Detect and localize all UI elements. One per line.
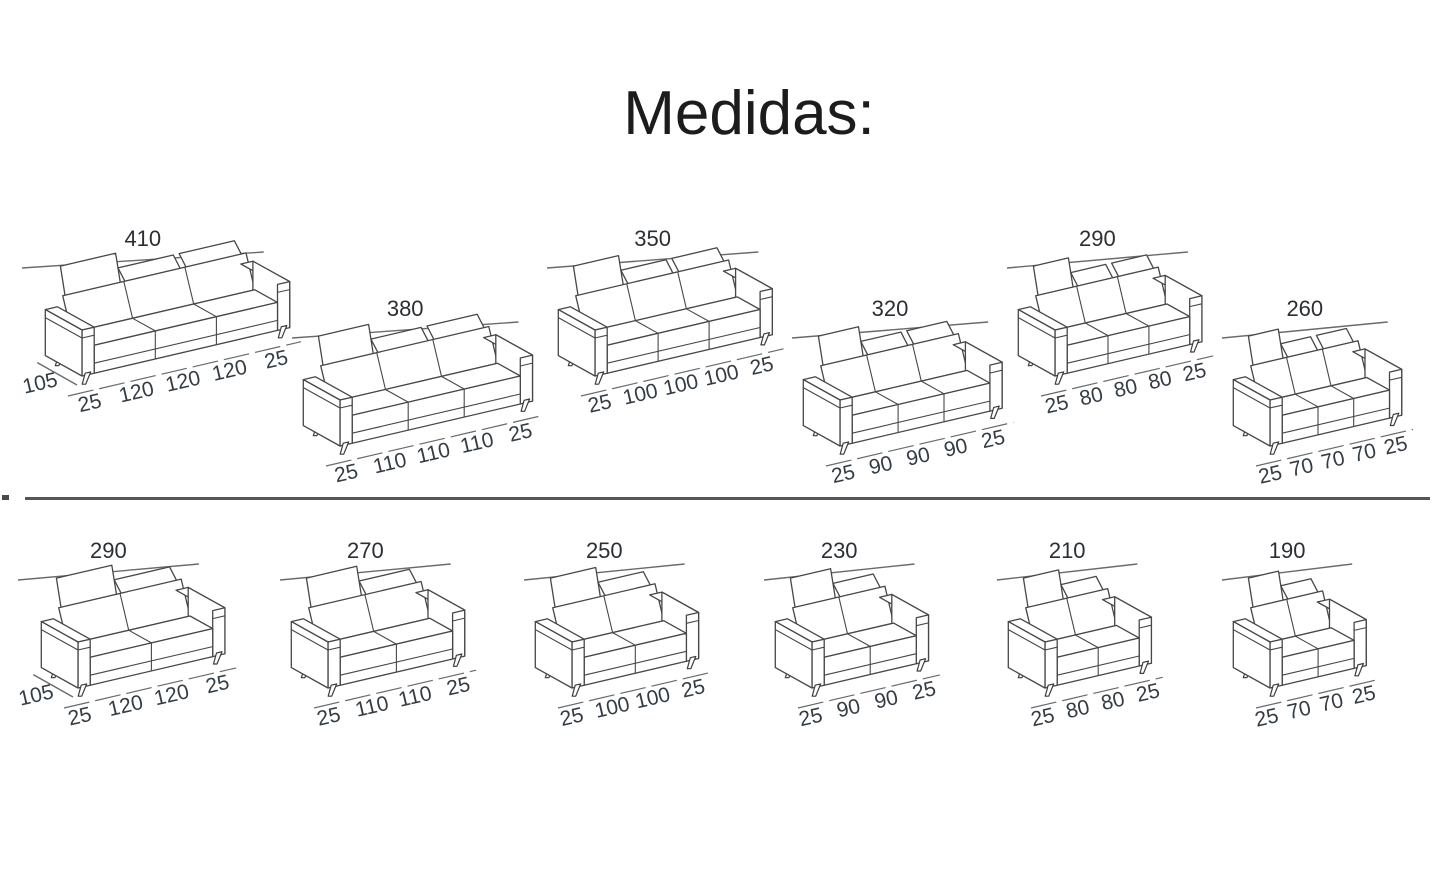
segment-dim-label: 90 xyxy=(904,443,932,471)
sofa-left-arm xyxy=(840,397,852,446)
sofa-left-arm xyxy=(595,327,607,376)
sofa-left-arm xyxy=(1055,327,1067,376)
segment-dim-label: 90 xyxy=(867,452,895,480)
segment-dim-label: 25 xyxy=(76,389,104,417)
sofa-left-arm xyxy=(1270,639,1282,688)
sofa-left-arm xyxy=(1270,397,1282,446)
segment-dim-label: 110 xyxy=(415,438,453,468)
segment-dim-label: 120 xyxy=(152,680,191,710)
sofa-left-arm xyxy=(812,639,824,688)
sofa-right-arm xyxy=(916,615,928,664)
segment-dim-label: 25 xyxy=(1350,681,1378,709)
segment-dim-label: 25 xyxy=(204,671,232,699)
total-dim-label: 410 xyxy=(124,226,161,251)
sofa-diagram: 3502510010010025 xyxy=(527,226,814,424)
sofa-left-arm xyxy=(328,639,340,688)
segment-dim-label: 25 xyxy=(797,704,825,732)
sofa-card-bottom-4: 23025909025 xyxy=(744,538,969,736)
total-dim-label: 270 xyxy=(347,538,384,563)
sofa-left-arm xyxy=(78,639,90,688)
sofa-right-arm xyxy=(1354,620,1366,669)
sofa-diagram: 2702511011025 xyxy=(260,538,505,736)
sofa-left-arm xyxy=(1045,639,1057,688)
segment-dim-label: 25 xyxy=(332,460,360,488)
segment-dim-label: 90 xyxy=(835,695,863,723)
sofa-diagram: 2502510010025 xyxy=(504,538,739,736)
sofa-card-bottom-5: 21025808025 xyxy=(977,538,1191,736)
segment-dim-label: 90 xyxy=(872,686,900,714)
row-divider xyxy=(25,497,1430,500)
segment-dim-label: 120 xyxy=(163,366,202,396)
sofa-right-arm xyxy=(1190,296,1202,345)
total-dim-label: 350 xyxy=(634,226,671,251)
segment-dim-label: 100 xyxy=(633,683,672,713)
segment-dim-label: 80 xyxy=(1099,687,1127,715)
sofa-card-bottom-3: 2502510010025 xyxy=(504,538,739,736)
segment-dim-label: 25 xyxy=(1029,704,1057,732)
segment-dim-label: 100 xyxy=(593,693,632,723)
segment-dim-label: 25 xyxy=(910,677,938,705)
sofa-diagram: 23025909025 xyxy=(744,538,969,736)
divider-tick xyxy=(2,495,9,500)
sofa-card-bottom-2: 2702511011025 xyxy=(260,538,505,736)
sofa-card-bottom-1: 2902512012025105 xyxy=(0,538,254,736)
total-dim-label: 380 xyxy=(387,296,424,321)
sofa-diagram: 19025707025 xyxy=(1202,538,1406,736)
segment-dim-label: 110 xyxy=(353,692,391,722)
segment-dim-label: 100 xyxy=(702,360,741,390)
total-dim-label: 290 xyxy=(1079,226,1116,251)
depth-dim-label: 105 xyxy=(20,368,59,398)
segment-dim-label: 70 xyxy=(1318,689,1346,717)
segment-dim-label: 70 xyxy=(1285,696,1313,724)
segment-dim-label: 120 xyxy=(117,377,156,407)
total-dim-label: 320 xyxy=(872,296,909,321)
segment-dim-label: 25 xyxy=(679,675,707,703)
width-dim-line xyxy=(1222,322,1388,338)
sofa-card-bottom-6: 19025707025 xyxy=(1202,538,1406,736)
segment-dim-label: 70 xyxy=(1288,454,1316,482)
depth-dim-label: 105 xyxy=(16,680,55,710)
segment-dim-label: 100 xyxy=(621,379,660,409)
sofa-right-arm xyxy=(1390,369,1402,418)
width-dim-line xyxy=(1222,564,1352,580)
segment-dim-label: 80 xyxy=(1146,367,1174,395)
segment-dim-label: 90 xyxy=(942,434,970,462)
width-dim-line xyxy=(280,564,451,580)
segment-dim-label: 70 xyxy=(1350,439,1378,467)
sofa-diagram: 21025808025 xyxy=(977,538,1191,736)
segment-dim-label: 25 xyxy=(66,703,94,731)
sofa-right-arm xyxy=(760,289,772,338)
sofa-right-arm xyxy=(213,608,225,657)
segment-dim-label: 70 xyxy=(1319,447,1347,475)
sofa-card-top-3: 3502510010010025 xyxy=(527,226,814,424)
sofa-left-arm xyxy=(82,327,94,376)
sofa-diagram: 2602570707025 xyxy=(1202,296,1440,494)
segment-dim-label: 25 xyxy=(1134,679,1162,707)
segment-dim-label: 25 xyxy=(1253,704,1281,732)
segment-dim-label: 110 xyxy=(371,448,409,478)
segment-dim-label: 25 xyxy=(1256,461,1284,489)
total-dim-label: 210 xyxy=(1049,538,1086,563)
total-dim-label: 190 xyxy=(1269,538,1306,563)
width-dim-line xyxy=(524,564,685,580)
sofa-card-top-6: 2602570707025 xyxy=(1202,296,1440,494)
segment-dim-label: 80 xyxy=(1077,383,1105,411)
total-dim-label: 230 xyxy=(821,538,858,563)
sofa-diagram: 2902512012025105 xyxy=(0,538,254,736)
sofa-right-arm xyxy=(453,610,465,659)
segment-dim-label: 110 xyxy=(458,428,496,458)
segment-dim-label: 25 xyxy=(558,703,586,731)
width-dim-line xyxy=(997,564,1137,580)
segment-dim-label: 25 xyxy=(1382,432,1410,460)
total-dim-label: 250 xyxy=(586,538,623,563)
segment-dim-label: 120 xyxy=(106,691,145,721)
segment-dim-label: 80 xyxy=(1064,696,1092,724)
sofa-left-arm xyxy=(340,397,352,446)
segment-dim-label: 25 xyxy=(1043,391,1071,419)
segment-dim-label: 25 xyxy=(829,460,857,488)
segment-dim-label: 100 xyxy=(661,370,700,400)
total-dim-label: 260 xyxy=(1286,296,1323,321)
sofa-right-arm xyxy=(1139,617,1151,666)
segment-dim-label: 80 xyxy=(1112,375,1140,403)
width-dim-line xyxy=(764,564,915,580)
segment-dim-label: 25 xyxy=(586,390,614,418)
page-title: Medidas: xyxy=(0,78,1440,149)
segment-dim-label: 120 xyxy=(210,356,249,386)
segment-dim-label: 110 xyxy=(396,682,434,712)
sofa-right-arm xyxy=(686,613,698,662)
total-dim-label: 290 xyxy=(90,538,127,563)
segment-dim-label: 25 xyxy=(315,703,343,731)
sofa-left-arm xyxy=(572,639,584,688)
segment-dim-label: 25 xyxy=(444,673,472,701)
segment-dim-label: 25 xyxy=(979,426,1007,454)
